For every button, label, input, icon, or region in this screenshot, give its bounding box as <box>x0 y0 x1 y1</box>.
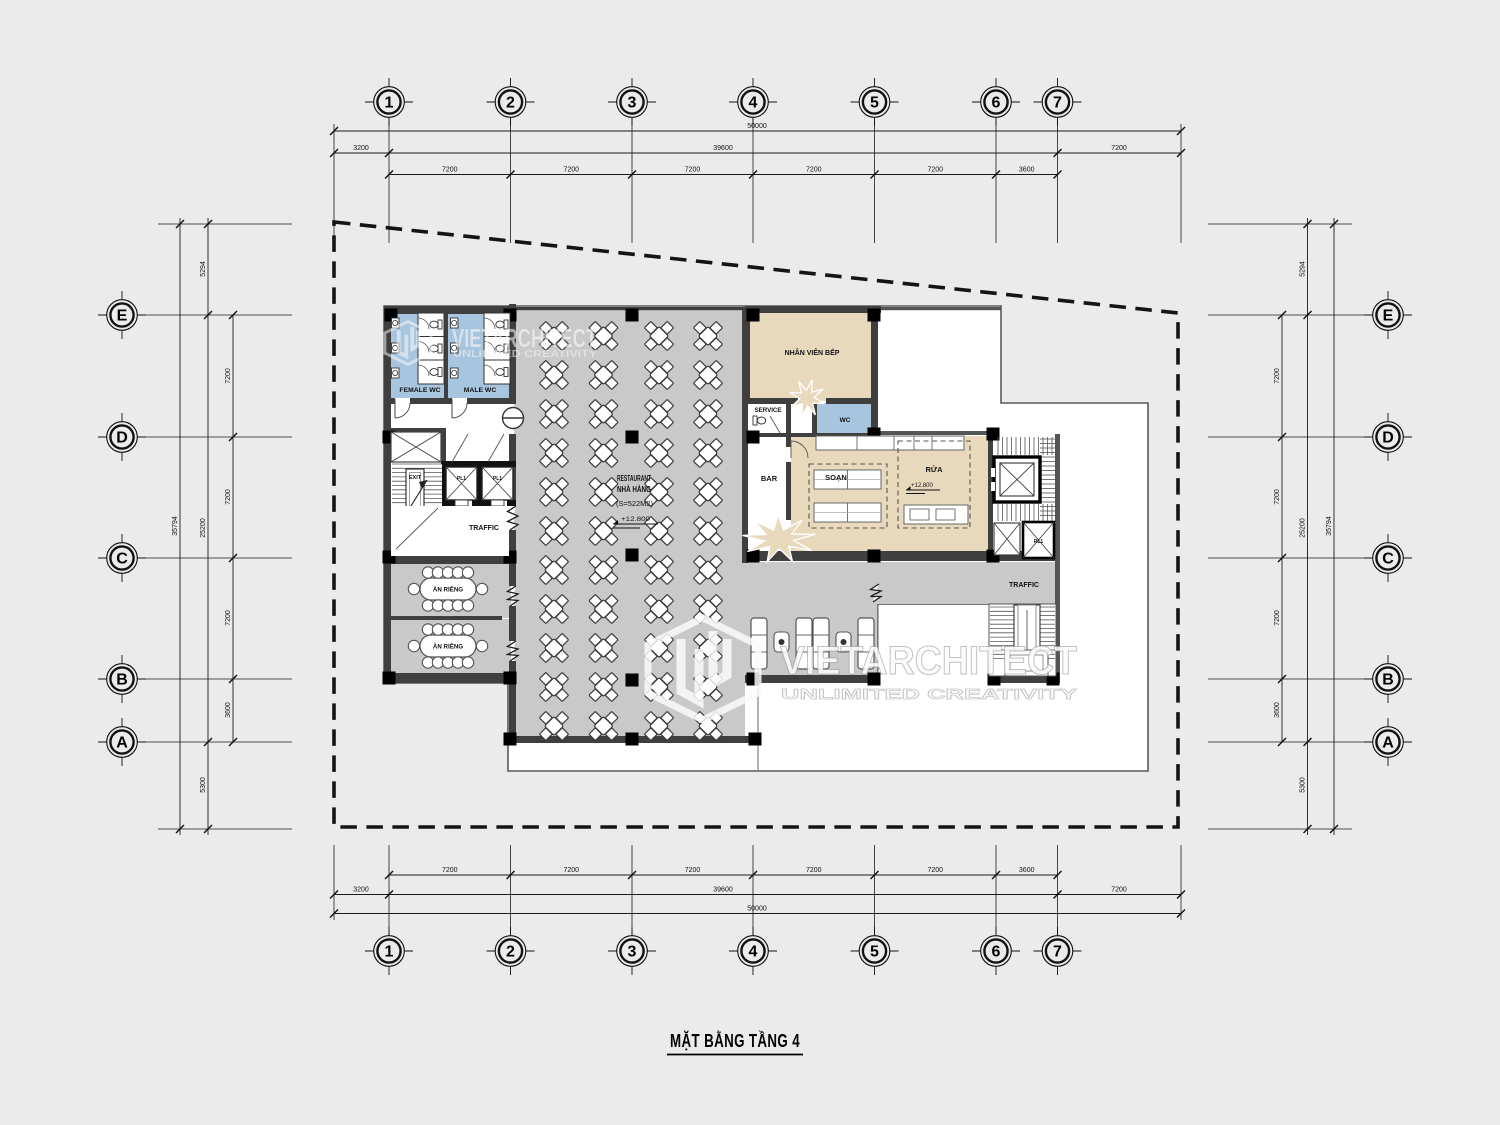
svg-text:E: E <box>1383 308 1394 325</box>
svg-text:35794: 35794 <box>172 516 179 536</box>
svg-text:6: 6 <box>992 95 1001 112</box>
svg-text:7200: 7200 <box>225 610 232 626</box>
svg-text:3600: 3600 <box>225 702 232 718</box>
svg-text:7200: 7200 <box>806 167 822 174</box>
svg-text:7200: 7200 <box>1274 610 1281 626</box>
svg-text:1: 1 <box>385 944 394 961</box>
svg-text:FEMALE WC: FEMALE WC <box>399 387 440 394</box>
svg-text:7200: 7200 <box>225 368 232 384</box>
svg-text:A: A <box>1382 735 1394 752</box>
svg-text:7200: 7200 <box>1274 489 1281 505</box>
svg-text:B: B <box>1382 672 1394 689</box>
svg-text:7200: 7200 <box>1274 368 1281 384</box>
svg-text:SOẠN: SOẠN <box>825 473 847 482</box>
svg-text:D: D <box>1382 430 1394 447</box>
svg-text:7200: 7200 <box>442 867 458 874</box>
svg-text:3200: 3200 <box>353 145 369 152</box>
svg-text:MALE WC: MALE WC <box>464 387 497 394</box>
svg-text:3200: 3200 <box>353 887 369 894</box>
svg-text:7200: 7200 <box>1111 887 1127 894</box>
svg-text:5: 5 <box>870 944 879 961</box>
svg-text:5294: 5294 <box>1300 261 1307 277</box>
svg-text:TRAFFIC: TRAFFIC <box>1009 582 1039 589</box>
svg-text:D: D <box>116 430 128 447</box>
svg-text:1: 1 <box>385 95 394 112</box>
svg-text:2: 2 <box>506 944 515 961</box>
svg-text:EXIT: EXIT <box>409 475 422 481</box>
svg-text:BAR: BAR <box>761 474 778 483</box>
svg-text:7200: 7200 <box>1111 145 1127 152</box>
svg-text:7200: 7200 <box>225 489 232 505</box>
svg-text:5294: 5294 <box>200 261 207 277</box>
svg-text:ĂN RIÊNG: ĂN RIÊNG <box>433 643 463 651</box>
svg-text:7: 7 <box>1053 95 1062 112</box>
svg-text:7200: 7200 <box>685 167 701 174</box>
svg-text:C: C <box>116 551 128 568</box>
svg-text:3: 3 <box>628 944 637 961</box>
svg-text:7200: 7200 <box>563 867 579 874</box>
svg-text:7200: 7200 <box>927 167 943 174</box>
svg-text:B: B <box>116 672 128 689</box>
svg-text:ĂN RIÊNG: ĂN RIÊNG <box>433 586 463 594</box>
svg-text:UNLIMITED CREATIVITY: UNLIMITED CREATIVITY <box>453 349 597 360</box>
svg-text:7: 7 <box>1053 944 1062 961</box>
svg-text:39600: 39600 <box>713 887 733 894</box>
svg-text:4: 4 <box>749 95 758 112</box>
svg-text:3600: 3600 <box>1019 867 1035 874</box>
svg-text:3600: 3600 <box>1019 167 1035 174</box>
svg-text:50000: 50000 <box>747 906 767 913</box>
svg-text:PL1: PL1 <box>493 476 502 482</box>
svg-text:(S=522M2): (S=522M2) <box>616 501 653 508</box>
svg-text:E: E <box>117 308 128 325</box>
svg-text:6: 6 <box>992 944 1001 961</box>
svg-text:RL1: RL1 <box>1034 539 1044 545</box>
svg-text:7200: 7200 <box>685 867 701 874</box>
svg-text:5300: 5300 <box>1300 777 1307 793</box>
svg-text:7200: 7200 <box>563 167 579 174</box>
svg-text:25200: 25200 <box>200 518 207 538</box>
svg-text:C: C <box>1382 551 1394 568</box>
svg-text:SERVICE: SERVICE <box>754 407 781 414</box>
svg-text:5: 5 <box>870 95 879 112</box>
svg-text:5300: 5300 <box>200 777 207 793</box>
svg-text:MẶT BẰNG TẦNG 4: MẶT BẰNG TẦNG 4 <box>670 1030 800 1051</box>
svg-text:NHÀ HÀNG: NHÀ HÀNG <box>617 485 651 494</box>
svg-text:+12.800: +12.800 <box>621 516 650 523</box>
svg-text:WC: WC <box>840 417 851 424</box>
svg-text:4: 4 <box>749 944 758 961</box>
svg-text:TRAFFIC: TRAFFIC <box>469 525 499 532</box>
svg-text:39600: 39600 <box>713 145 733 152</box>
svg-text:RỬA: RỬA <box>925 465 943 474</box>
svg-text:3: 3 <box>628 95 637 112</box>
svg-text:A: A <box>116 735 128 752</box>
svg-text:3600: 3600 <box>1274 702 1281 718</box>
svg-text:UNLIMITED CREATIVITY: UNLIMITED CREATIVITY <box>781 686 1077 703</box>
svg-text:PL1: PL1 <box>457 476 466 482</box>
svg-text:7200: 7200 <box>806 867 822 874</box>
svg-text:25200: 25200 <box>1300 518 1307 538</box>
svg-text:50000: 50000 <box>747 123 767 130</box>
svg-text:2: 2 <box>506 95 515 112</box>
svg-text:VIETARCHITECT: VIETARCHITECT <box>780 639 1077 683</box>
svg-text:7200: 7200 <box>927 867 943 874</box>
svg-text:7200: 7200 <box>442 167 458 174</box>
svg-text:RESTAURANT: RESTAURANT <box>617 474 651 483</box>
svg-text:+12.800: +12.800 <box>911 483 934 489</box>
svg-text:35794: 35794 <box>1326 516 1333 536</box>
